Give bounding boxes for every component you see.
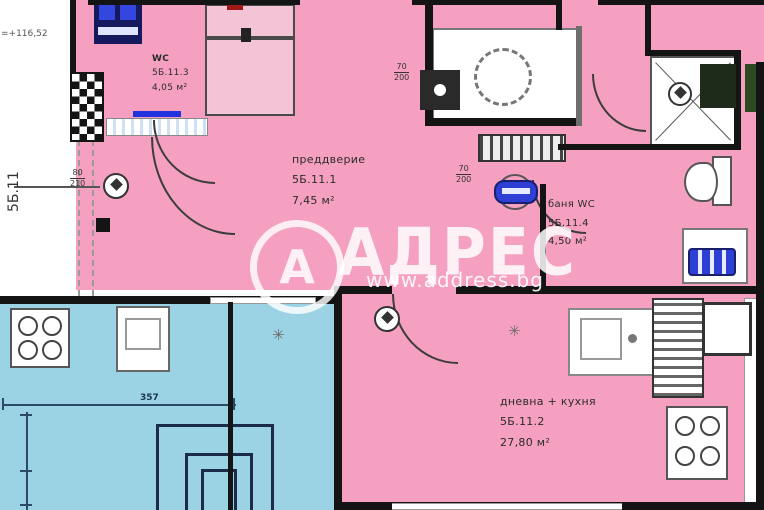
wall bbox=[334, 286, 392, 294]
burner-icon bbox=[675, 446, 695, 466]
unit-label: 5Б.11 bbox=[6, 160, 22, 212]
stove-icon bbox=[666, 406, 728, 480]
wardrobe-icon bbox=[205, 38, 295, 116]
wall bbox=[598, 0, 764, 5]
room-label-living: дневна + кухня 5Б.11.2 27,80 м² bbox=[500, 392, 596, 453]
window-icon bbox=[392, 503, 622, 510]
dimension-tick bbox=[2, 398, 4, 410]
sink-basin bbox=[580, 318, 622, 360]
keynote-marker bbox=[103, 173, 129, 199]
keynote-marker-glyph bbox=[110, 178, 123, 191]
entrance-door-size-label: 80 210 bbox=[70, 168, 85, 188]
dimension-value: 357 bbox=[140, 394, 159, 404]
room-label-bath: баня WC 5Б.11.4 4,50 м² bbox=[548, 196, 595, 252]
burner-icon bbox=[42, 316, 62, 336]
kitchen-sink-icon bbox=[568, 308, 656, 376]
burner-icon bbox=[700, 446, 720, 466]
wall bbox=[430, 118, 580, 126]
room-label-wc: WC 5Б.11.3 4,05 м² bbox=[152, 52, 189, 95]
boiler-icon bbox=[688, 248, 736, 276]
dashed-line bbox=[92, 140, 94, 296]
elevation-label: =+116,52 bbox=[1, 30, 48, 40]
burner-icon bbox=[18, 340, 38, 360]
window-icon bbox=[210, 297, 316, 304]
wardrobe-knob bbox=[241, 28, 251, 42]
washing-machine-detail bbox=[99, 5, 115, 20]
dimension-line bbox=[26, 412, 28, 510]
keynote-marker-glyph bbox=[674, 86, 687, 99]
wall bbox=[228, 302, 233, 510]
room-label-vestibule: преддверие 5Б.11.1 7,45 м² bbox=[292, 150, 365, 211]
wall bbox=[88, 0, 300, 5]
keynote-marker bbox=[668, 82, 692, 106]
burner-icon bbox=[18, 316, 38, 336]
vent-symbol-icon: ✳ bbox=[508, 322, 521, 340]
column-icon bbox=[420, 70, 460, 110]
dimension-tick bbox=[20, 504, 32, 506]
wall bbox=[456, 286, 764, 294]
checker-hatch bbox=[70, 72, 104, 142]
kitchen-sink-icon bbox=[116, 306, 170, 372]
table-icon bbox=[156, 424, 274, 510]
fridge-icon bbox=[702, 302, 752, 356]
bath-door-size-label: 70 200 bbox=[456, 164, 471, 184]
dimension-tick bbox=[233, 398, 235, 410]
faucet-dot bbox=[628, 334, 637, 343]
dimension-tick bbox=[20, 414, 32, 416]
wall bbox=[412, 0, 558, 5]
keynote-marker-glyph bbox=[381, 311, 394, 324]
burner-icon bbox=[675, 416, 695, 436]
wall bbox=[70, 0, 76, 74]
radiator-icon bbox=[478, 134, 566, 162]
wall bbox=[556, 0, 562, 30]
cabinet-icon bbox=[652, 298, 704, 398]
dashed-line bbox=[78, 140, 80, 296]
stove-icon bbox=[10, 308, 70, 368]
column-core bbox=[434, 84, 446, 96]
boiler-icon bbox=[494, 180, 538, 204]
wall bbox=[334, 286, 342, 510]
wall bbox=[645, 0, 651, 56]
dimension-line bbox=[2, 404, 236, 406]
boiler-band bbox=[502, 188, 530, 194]
duct-shaft bbox=[700, 64, 736, 108]
washing-machine-icon bbox=[94, 0, 142, 44]
wall bbox=[96, 218, 110, 232]
wall bbox=[540, 184, 546, 288]
dimension-tick bbox=[20, 470, 32, 472]
wall bbox=[558, 144, 740, 150]
washing-machine-detail bbox=[98, 27, 138, 35]
wc-door-size-label: 70 200 bbox=[394, 62, 409, 82]
shelf-accent-bar bbox=[133, 111, 181, 117]
burner-icon bbox=[42, 340, 62, 360]
wall bbox=[645, 50, 741, 56]
washing-machine-detail bbox=[120, 5, 136, 20]
leader-line bbox=[14, 186, 100, 188]
wall bbox=[576, 26, 582, 126]
vent-symbol-icon: ✳ bbox=[272, 326, 285, 344]
wall bbox=[756, 62, 764, 510]
washer-drum-icon bbox=[474, 48, 532, 106]
toilet-icon bbox=[684, 162, 718, 202]
keynote-marker bbox=[374, 306, 400, 332]
floor-plan: =+116,52 5Б.11 80 210 WC 5Б.11.3 4,05 м²… bbox=[0, 0, 764, 510]
sink-basin bbox=[125, 318, 161, 350]
burner-icon bbox=[700, 416, 720, 436]
